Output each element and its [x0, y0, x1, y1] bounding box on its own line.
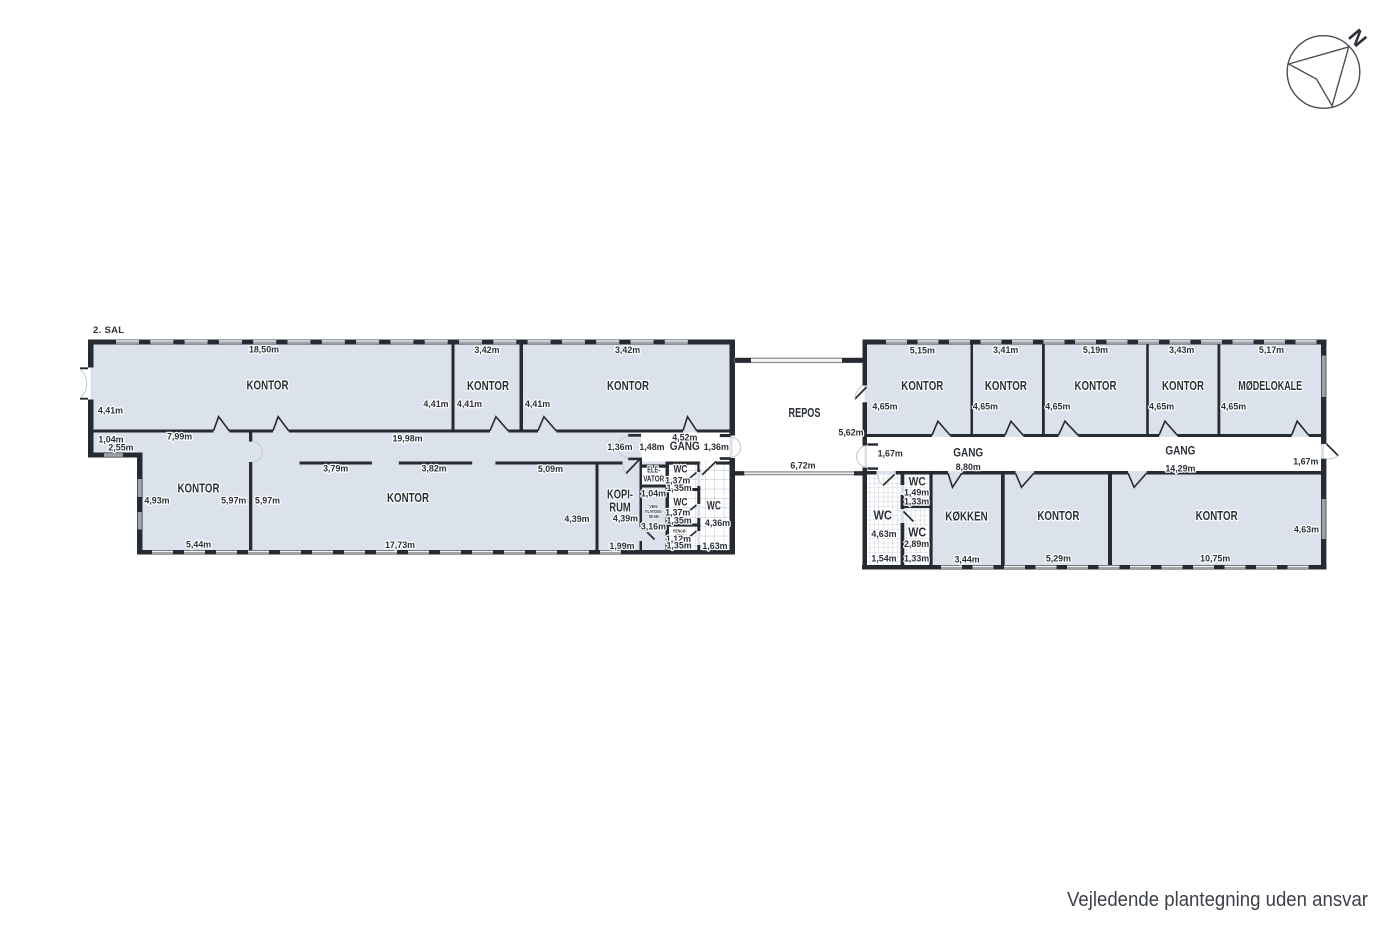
svg-text:5,62m: 5,62m: [838, 428, 863, 438]
svg-text:3,42m: 3,42m: [474, 345, 499, 355]
svg-text:WC: WC: [707, 501, 721, 513]
svg-text:4,63m: 4,63m: [1294, 525, 1319, 535]
svg-text:18,50m: 18,50m: [249, 345, 279, 355]
svg-text:5,97m: 5,97m: [255, 496, 280, 506]
svg-text:KONTOR: KONTOR: [901, 379, 943, 393]
svg-text:WC: WC: [908, 526, 926, 540]
svg-text:GANG: GANG: [670, 441, 700, 453]
svg-text:1,35m: 1,35m: [667, 516, 692, 526]
svg-text:4,39m: 4,39m: [613, 514, 638, 524]
svg-text:1,67m: 1,67m: [1293, 457, 1318, 467]
svg-text:4,41m: 4,41m: [98, 406, 123, 416]
svg-text:2,55m: 2,55m: [108, 443, 133, 453]
svg-text:1,63m: 1,63m: [702, 541, 727, 551]
svg-text:WC: WC: [909, 475, 926, 489]
svg-text:KONTOR: KONTOR: [607, 379, 649, 393]
svg-text:5,15m: 5,15m: [910, 346, 935, 356]
svg-text:5,17m: 5,17m: [1259, 345, 1284, 355]
svg-text:ELE-: ELE-: [647, 466, 660, 475]
svg-text:3,44m: 3,44m: [955, 554, 980, 564]
svg-text:2,89m: 2,89m: [904, 539, 929, 549]
svg-text:REPOS: REPOS: [789, 406, 821, 420]
svg-text:19,98m: 19,98m: [392, 433, 422, 443]
svg-text:KONTOR: KONTOR: [1162, 379, 1204, 393]
svg-text:KOPI-: KOPI-: [607, 488, 633, 502]
svg-text:3,41m: 3,41m: [993, 345, 1018, 355]
svg-text:KONTOR: KONTOR: [1196, 509, 1238, 523]
svg-text:4,65m: 4,65m: [1221, 401, 1246, 411]
svg-text:4,93m: 4,93m: [144, 496, 169, 506]
svg-text:4,41m: 4,41m: [457, 399, 482, 409]
svg-text:WC: WC: [873, 508, 892, 523]
svg-text:1,48m: 1,48m: [639, 442, 664, 452]
svg-text:4,39m: 4,39m: [564, 514, 589, 524]
svg-text:GANG: GANG: [1165, 446, 1195, 458]
svg-text:KONTOR: KONTOR: [178, 482, 220, 496]
svg-text:KONTOR: KONTOR: [1037, 509, 1079, 523]
svg-text:KONTOR: KONTOR: [387, 491, 429, 505]
svg-text:5,29m: 5,29m: [1046, 554, 1071, 564]
svg-text:8,80m: 8,80m: [956, 462, 981, 472]
svg-text:3,42m: 3,42m: [615, 345, 640, 355]
svg-text:4,41m: 4,41m: [423, 399, 448, 409]
svg-text:3,16m: 3,16m: [641, 522, 666, 532]
svg-text:6,72m: 6,72m: [790, 461, 815, 471]
svg-text:SKAB: SKAB: [649, 514, 660, 519]
svg-text:1,99m: 1,99m: [609, 541, 634, 551]
svg-text:VATOR: VATOR: [643, 475, 664, 484]
svg-text:17,73m: 17,73m: [385, 540, 415, 550]
svg-text:KONTOR: KONTOR: [247, 379, 289, 393]
svg-text:1,35m: 1,35m: [667, 541, 692, 551]
svg-text:1,33m: 1,33m: [904, 554, 929, 564]
svg-text:3,82m: 3,82m: [422, 464, 447, 474]
svg-text:3,79m: 3,79m: [323, 464, 348, 474]
svg-text:4,36m: 4,36m: [705, 518, 730, 528]
svg-text:5,19m: 5,19m: [1083, 345, 1108, 355]
svg-text:4,41m: 4,41m: [525, 399, 550, 409]
svg-text:1,67m: 1,67m: [878, 449, 903, 459]
svg-text:KONTOR: KONTOR: [1075, 379, 1117, 393]
svg-text:4,52m: 4,52m: [672, 432, 697, 442]
svg-text:4,65m: 4,65m: [1045, 401, 1070, 411]
svg-text:GANG: GANG: [953, 448, 983, 460]
svg-text:5,97m: 5,97m: [221, 496, 246, 506]
svg-text:4,63m: 4,63m: [871, 529, 896, 539]
svg-text:4,65m: 4,65m: [1149, 401, 1174, 411]
svg-text:1,54m: 1,54m: [871, 554, 896, 564]
svg-text:4,65m: 4,65m: [973, 401, 998, 411]
svg-text:5,44m: 5,44m: [186, 539, 211, 549]
svg-text:7,99m: 7,99m: [167, 432, 192, 442]
svg-text:Vejledende plantegning uden an: Vejledende plantegning uden ansvar: [1067, 888, 1368, 911]
svg-text:1,36m: 1,36m: [607, 442, 632, 452]
svg-text:1,04m: 1,04m: [641, 489, 666, 499]
svg-text:3,43m: 3,43m: [1169, 345, 1194, 355]
svg-text:WC: WC: [674, 464, 688, 476]
svg-text:4,65m: 4,65m: [872, 401, 897, 411]
svg-text:1,36m: 1,36m: [704, 442, 729, 452]
svg-text:RUM: RUM: [609, 501, 631, 515]
svg-text:1,33m: 1,33m: [904, 497, 929, 507]
svg-text:5,09m: 5,09m: [538, 464, 563, 474]
svg-text:14,29m: 14,29m: [1165, 464, 1195, 474]
svg-text:MØDELOKALE: MØDELOKALE: [1238, 379, 1302, 393]
svg-text:KØKKEN: KØKKEN: [945, 510, 988, 524]
svg-text:10,75m: 10,75m: [1200, 554, 1230, 564]
svg-text:KONTOR: KONTOR: [467, 379, 509, 393]
svg-text:1,35m: 1,35m: [667, 483, 692, 493]
svg-text:2. SAL: 2. SAL: [93, 325, 124, 336]
svg-text:KONTOR: KONTOR: [985, 379, 1027, 393]
